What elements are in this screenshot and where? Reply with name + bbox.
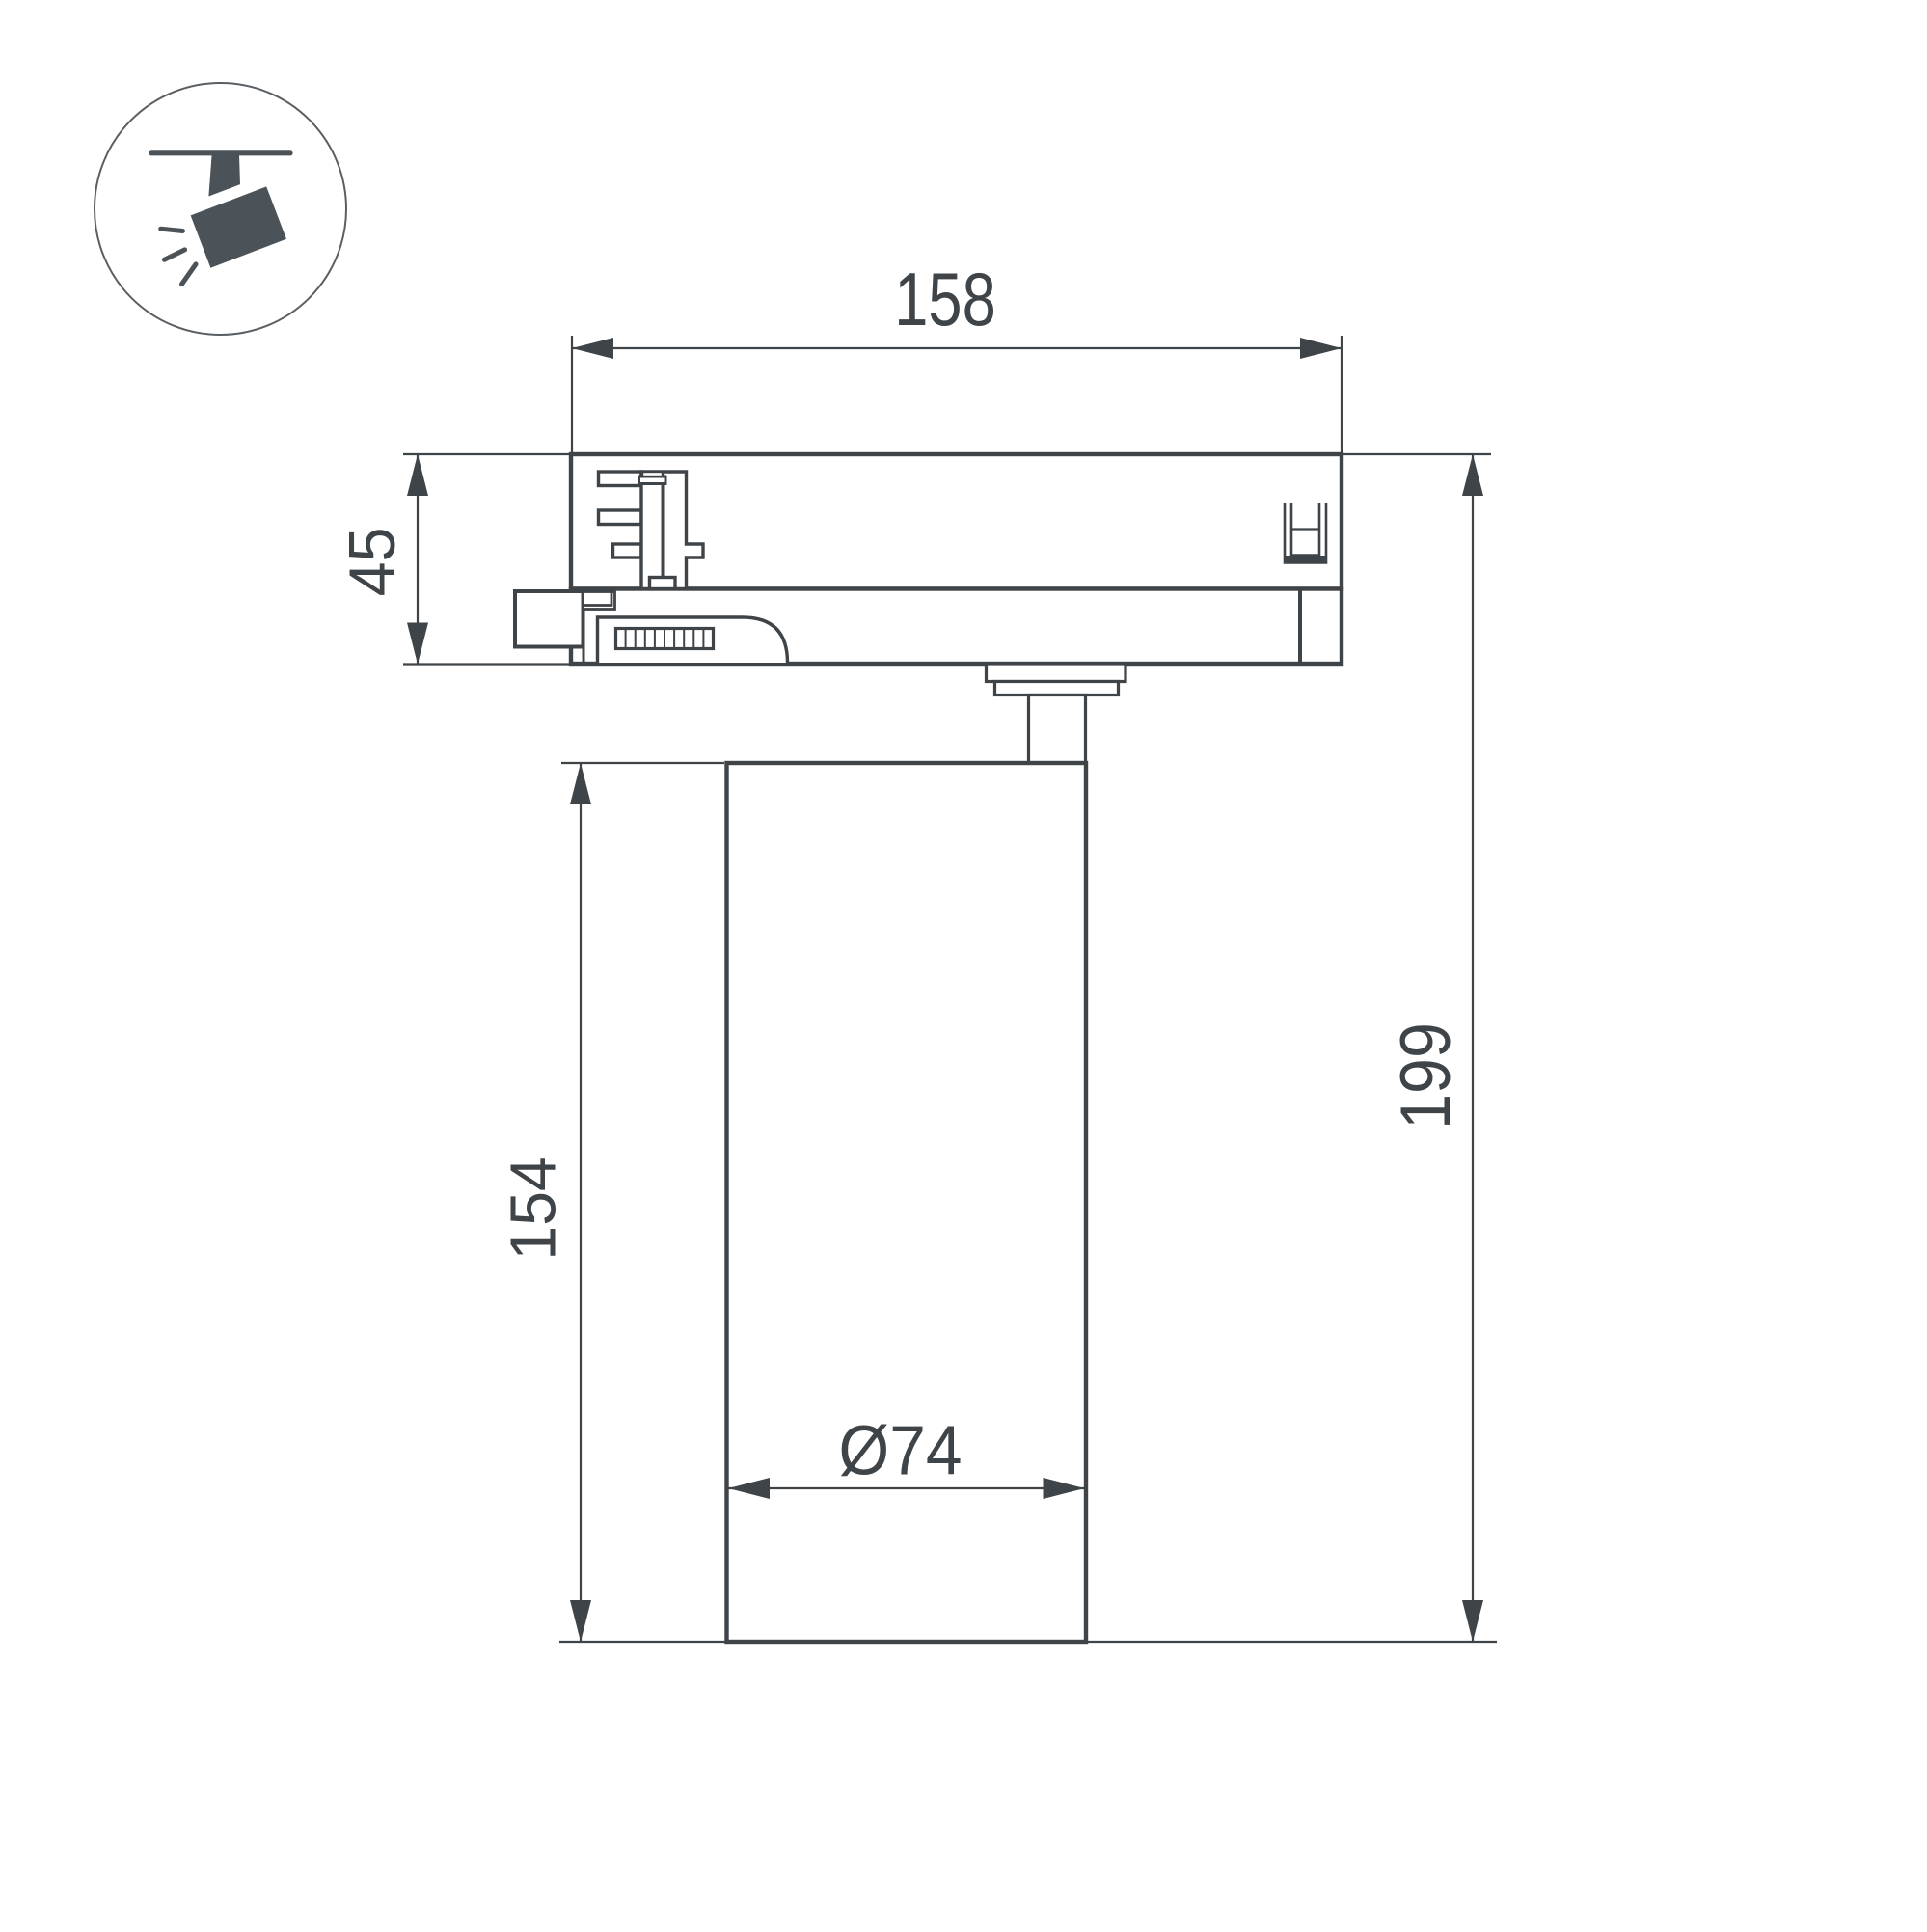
svg-text:45: 45 — [337, 528, 410, 597]
svg-text:154: 154 — [497, 1156, 568, 1260]
svg-text:158: 158 — [894, 259, 995, 342]
svg-text:Ø74: Ø74 — [839, 1412, 963, 1489]
svg-text:199: 199 — [1386, 1022, 1465, 1129]
